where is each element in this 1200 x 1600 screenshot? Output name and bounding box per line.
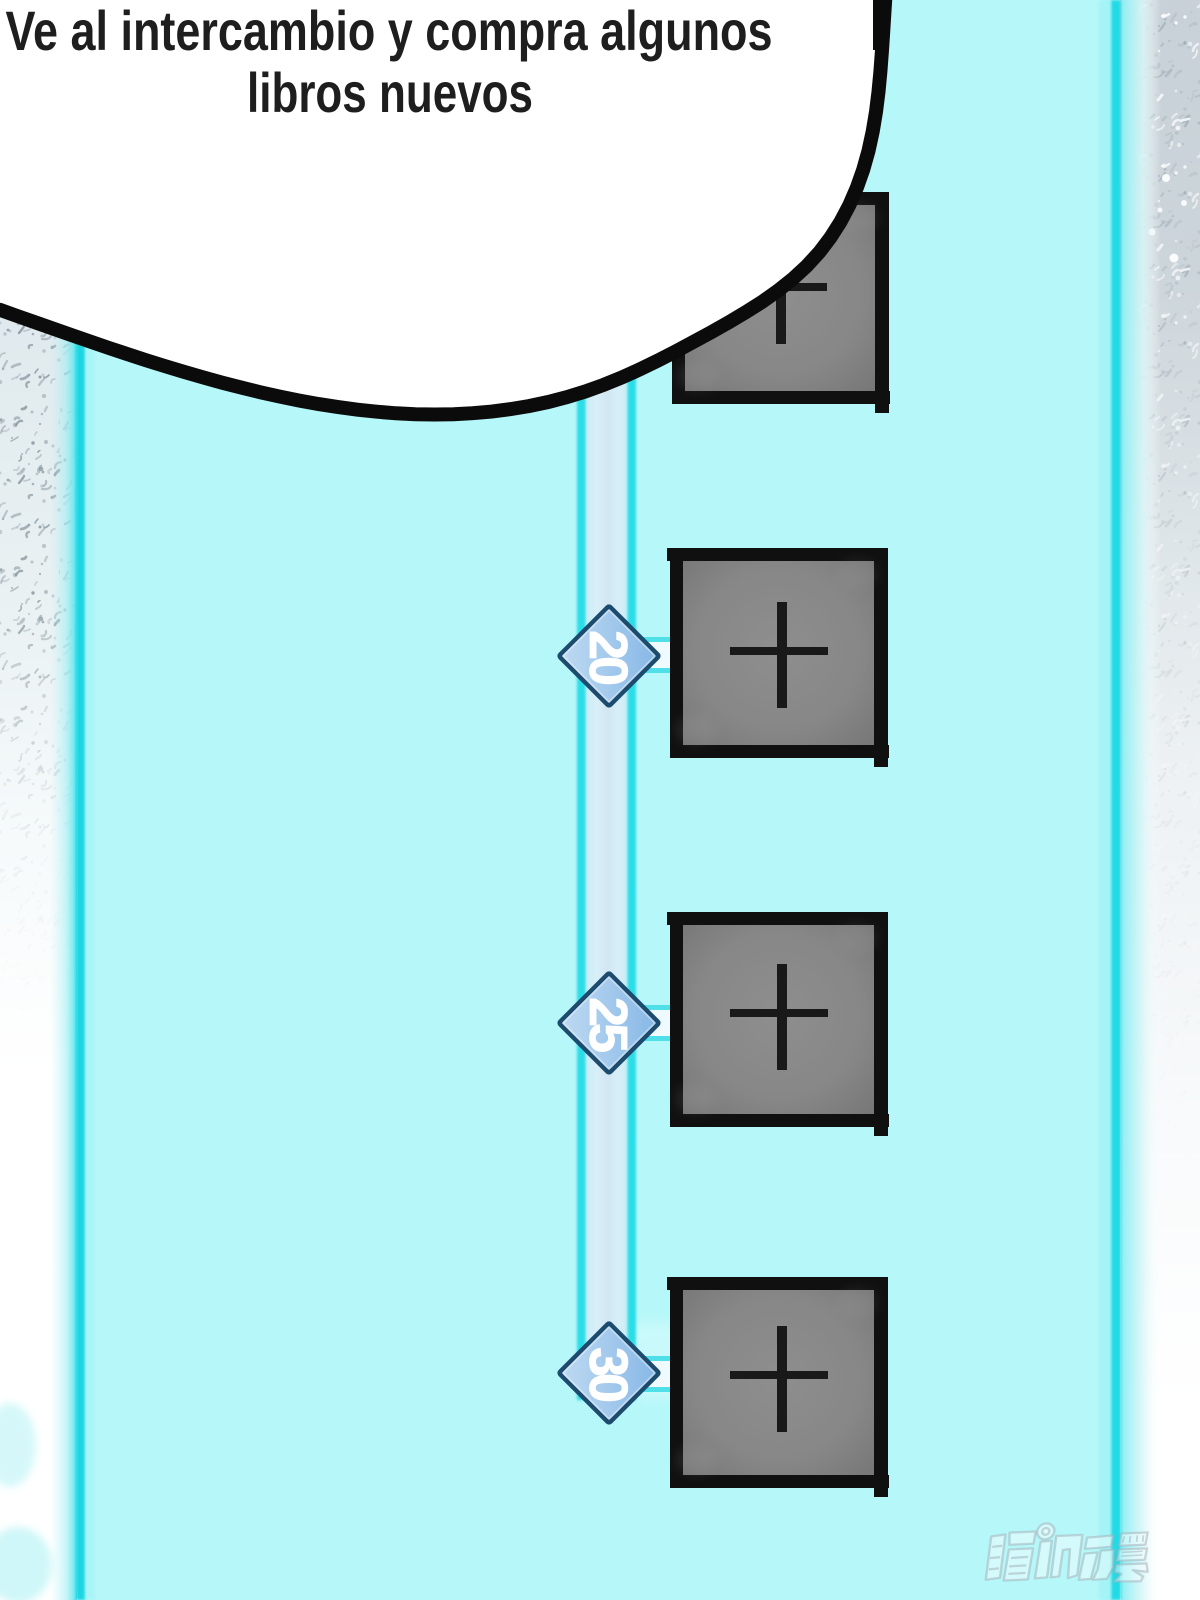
svg-text:25: 25 (578, 997, 638, 1052)
svg-text:20: 20 (578, 630, 638, 684)
svg-text:libros nuevos: libros nuevos (247, 61, 533, 124)
svg-text:30: 30 (578, 1347, 638, 1401)
svg-text:Ve al intercambio y compra alg: Ve al intercambio y compra algunos (6, 0, 773, 62)
